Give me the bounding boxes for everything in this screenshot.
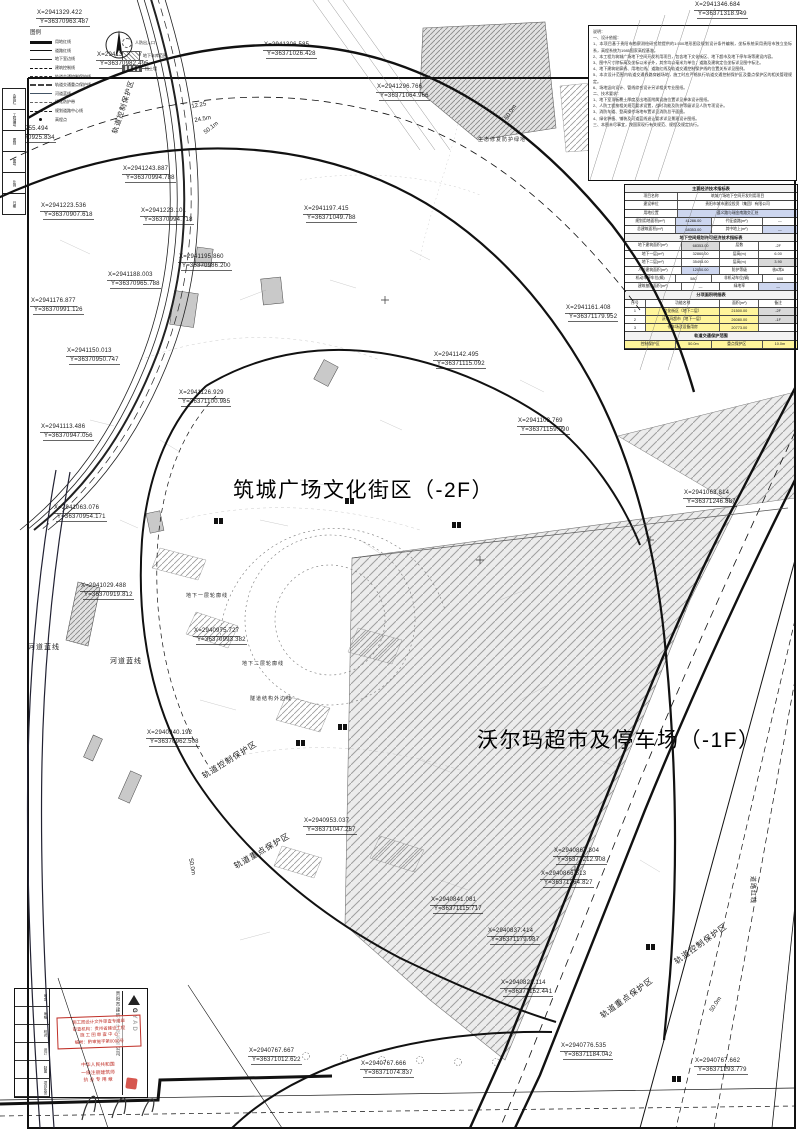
table-cell: 10.0m — [763, 341, 797, 348]
title-block-cells: 审定审核校对设计制图项目负责 — [15, 989, 50, 1097]
table-row: 建设单位贵阳市城市建设投资（集团）有限公司 — [625, 201, 797, 209]
table-cell: 总建筑面积(m²) — [625, 226, 676, 233]
red-seal-icon — [125, 1077, 137, 1089]
table-cell: 筑城广场地下空间开发利用项目 — [678, 193, 797, 200]
notes-block: 说明：一、设计依据：1、本项目基于贵阳市勘察测绘研究院提供的1:500地形图及规… — [588, 25, 797, 181]
table-cell: 建筑基底面积(m²) — [625, 283, 682, 290]
table-cell: 600 — [763, 275, 797, 282]
table-cell: 层高(m) — [720, 251, 759, 258]
table-cell: 50.0m — [676, 341, 711, 348]
table-cell: 1 — [625, 308, 646, 315]
table-cell: 21500.00 — [720, 308, 759, 315]
table-row: 序号功能名称面积(m²)备注 — [625, 300, 797, 308]
table-row: 总建筑面积(m²)68353.00其中地上(m²)— — [625, 226, 797, 234]
table-cell: 2 — [625, 316, 646, 323]
table-cell: 人防建筑面积(m²) — [625, 267, 682, 274]
table-row: 地下一层(m²)32860.00层高(m)6.00 — [625, 251, 797, 259]
table-cell: -2F — [759, 242, 797, 249]
table-cell — [759, 324, 797, 331]
table-cell: 地下建筑面积(m²) — [625, 242, 682, 249]
table-row: 主要经济技术指标表 — [625, 185, 797, 193]
table-row: 控制保护区50.0m重点保护区10.0m — [625, 341, 797, 349]
table-cell: 沃尔玛超市（地下一层） — [646, 316, 721, 323]
notes-lines: 说明：一、设计依据：1、本项目基于贵阳市勘察测绘研究院提供的1:500地形图及规… — [593, 29, 792, 128]
table-cell: — — [682, 283, 721, 290]
table-row: 分项面积明细表 — [625, 291, 797, 299]
table-cell: 12000.00 — [682, 267, 721, 274]
table-row: 机动车停车位(辆)580非机动车位(辆)600 — [625, 275, 797, 283]
table-cell: 20773.00 — [720, 324, 759, 331]
title-block-cell: 审核 — [15, 1007, 49, 1025]
table-row: 项目名称筑城广场地下空间开发利用项目 — [625, 193, 797, 201]
table-cell: 机动车停车位(辆) — [625, 275, 676, 282]
table-cell: 其中地上(m²) — [712, 226, 763, 233]
table-cell: 地下二层(m²) — [625, 259, 682, 266]
title-block-cell: 制图 — [15, 1061, 49, 1079]
table-cell: 26080.00 — [720, 316, 759, 323]
table-row: 地下二层(m²)35493.00层高(m)3.90 — [625, 259, 797, 267]
table-cell: 重点保护区 — [712, 341, 763, 348]
table-cell: 规划用地面积(m²) — [625, 218, 676, 225]
table-cell: 文化街区（地下二层） — [646, 308, 721, 315]
logo-triangle-icon — [128, 995, 140, 1005]
table-cell: 35493.00 — [682, 259, 721, 266]
table-cell: 序号 — [625, 300, 646, 307]
site-plan-sheet: 筑城广场文化街区（-2F） 沃尔玛超市及停车场（-1F） X=2941329.4… — [0, 0, 800, 1130]
table-cell: 32860.00 — [682, 251, 721, 258]
table-row: 2沃尔玛超市（地下一层）26080.00-1F — [625, 316, 797, 324]
table-cell: 地下一层(m²) — [625, 251, 682, 258]
table-cell: 非机动车位(辆) — [712, 275, 763, 282]
table-cell: 功能名称 — [646, 300, 721, 307]
table-cell: — — [759, 283, 797, 290]
table-cell: -1F — [759, 316, 797, 323]
notes-line: 5、本次设计范围内轨道交通线路穿越场地，施工时应严格执行轨道交通控制保护区及重点… — [593, 72, 792, 84]
table-cell: 停车场及设备用房 — [646, 324, 721, 331]
title-block-cell: 项目负责 — [15, 1079, 49, 1097]
margin-box: 会签栏 — [2, 88, 26, 110]
table-row: 轨道交通保护范围 — [625, 332, 797, 340]
table-cell: 项目名称 — [625, 193, 678, 200]
margin-box: 图号 — [2, 151, 26, 173]
table-row: 用地位置遵义路与瑞金南路交汇处 — [625, 210, 797, 218]
table-cell: 68353.00 — [682, 242, 721, 249]
margin-box: 工程编号 — [2, 109, 26, 131]
table-cell: 贵阳市城市建设投资（集团）有限公司 — [678, 201, 797, 208]
table-cell: 580 — [676, 275, 711, 282]
table-row: 地下建筑面积(m²)68353.00层数-2F — [625, 242, 797, 250]
notes-line: 三、本图未尽事宜，按国家现行有关规范、规程及规定执行。 — [593, 122, 792, 128]
label-layer: 筑城广场文化街区（-2F） 沃尔玛超市及停车场（-1F） X=2941329.4… — [0, 0, 800, 1130]
table-cell: 6.00 — [759, 251, 797, 258]
table-row: 人防建筑面积(m²)12000.00防护等级核6常6 — [625, 267, 797, 275]
table-cell: 备注 — [759, 300, 797, 307]
margin-box: 比例 — [2, 172, 26, 194]
table-cell: 绿地率 — [720, 283, 759, 290]
table-cell: 代征道路(m²) — [712, 218, 763, 225]
review-stamp-line: 编号：黔审施字第0000号 — [61, 1037, 137, 1046]
table-cell: 控制保护区 — [625, 341, 676, 348]
title-block-cell: 校对 — [15, 1025, 49, 1043]
table-cell: 68353.00 — [676, 226, 711, 233]
table-cell: 3 — [625, 324, 646, 331]
table-cell: — — [763, 226, 797, 233]
table-cell: 建设单位 — [625, 201, 678, 208]
table-row: 地下空间规划许可经济技术指标表 — [625, 234, 797, 242]
table-cell: 层高(m) — [720, 259, 759, 266]
table-cell: -2F — [759, 308, 797, 315]
notes-line: 1、本项目基于贵阳市勘察测绘研究院提供的1:500地形图及规划设计条件编制，坐标… — [593, 41, 792, 53]
review-stamp: 施工图设计文件审查专用章审查机构：贵州省建设工程施 工 图 审 查 中 心编号：… — [56, 1015, 141, 1050]
table-cell: — — [763, 218, 797, 225]
title-block-cell: 审定 — [15, 989, 49, 1007]
table-cell: 核6常6 — [759, 267, 797, 274]
table-row: 规划用地面积(m²)41286.00代征道路(m²)— — [625, 218, 797, 226]
table-row: 3停车场及设备用房20773.00 — [625, 324, 797, 332]
margin-box: 日期 — [2, 193, 26, 215]
title-block-cell: 设计 — [15, 1043, 49, 1061]
table-body: 主要经济技术指标表项目名称筑城广场地下空间开发利用项目建设单位贵阳市城市建设投资… — [625, 185, 797, 349]
table-cell: 防护等级 — [720, 267, 759, 274]
table-cell: 用地位置 — [625, 210, 678, 217]
table-row: 1文化街区（地下二层）21500.00-2F — [625, 308, 797, 316]
table-cell: 面积(m²) — [720, 300, 759, 307]
margin-box: 图别 — [2, 130, 26, 152]
table-cell: 3.90 — [759, 259, 797, 266]
indicator-table: 主要经济技术指标表项目名称筑城广场地下空间开发利用项目建设单位贵阳市城市建设投资… — [624, 184, 798, 350]
table-cell: 层数 — [720, 242, 759, 249]
table-cell: 遵义路与瑞金南路交汇处 — [678, 210, 797, 217]
table-row: 建筑基底面积(m²)—绿地率— — [625, 283, 797, 291]
table-cell: 41286.00 — [676, 218, 711, 225]
